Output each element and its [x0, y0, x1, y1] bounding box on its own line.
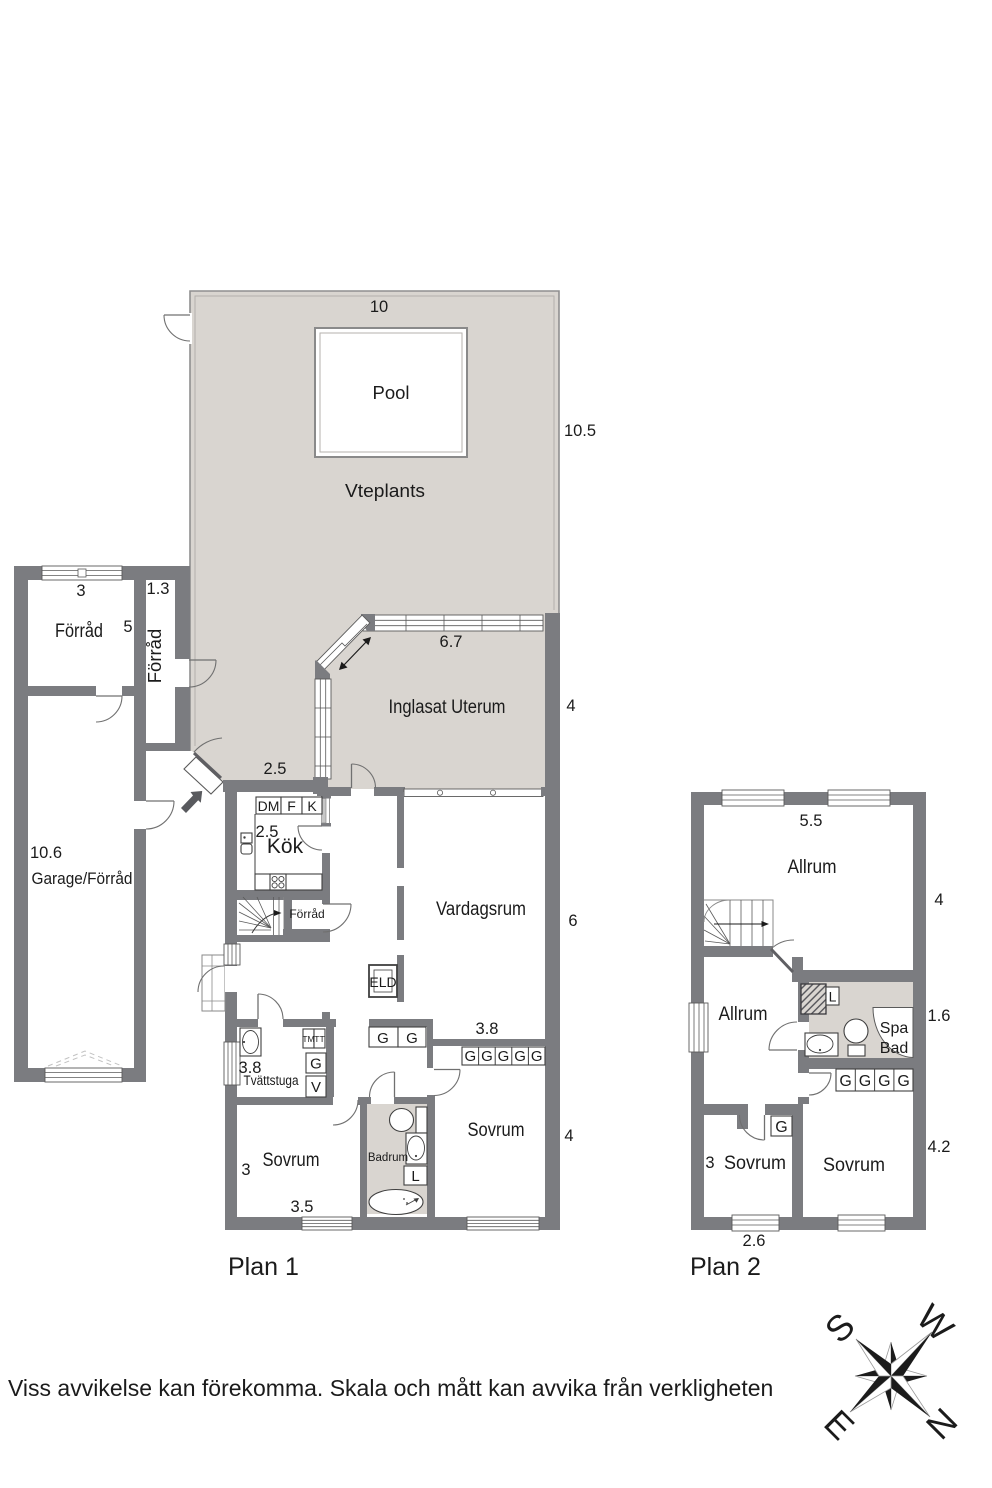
svg-text:3.5: 3.5 [291, 1198, 314, 1216]
svg-text:Sovrum: Sovrum [468, 1120, 525, 1141]
svg-text:Bad: Bad [880, 1040, 908, 1057]
svg-text:2.5: 2.5 [264, 760, 287, 778]
svg-text:Förråd: Förråd [144, 629, 165, 684]
svg-text:G: G [464, 1048, 476, 1065]
svg-text:10.6: 10.6 [30, 844, 62, 862]
svg-text:Sovrum: Sovrum [823, 1155, 885, 1176]
svg-text:K: K [307, 798, 317, 814]
svg-text:Allrum: Allrum [719, 1004, 768, 1025]
svg-text:5: 5 [123, 618, 132, 636]
svg-text:Förråd: Förråd [55, 621, 103, 642]
svg-text:4: 4 [566, 697, 575, 715]
svg-text:W: W [909, 1296, 962, 1349]
svg-text:Spa: Spa [880, 1020, 909, 1037]
svg-text:6: 6 [568, 912, 577, 930]
svg-text:G: G [514, 1048, 526, 1065]
svg-text:V: V [311, 1079, 321, 1096]
svg-text:G: G [498, 1048, 510, 1065]
svg-text:1.3: 1.3 [147, 580, 170, 598]
svg-text:Viss avvikelse kan förekomma.: Viss avvikelse kan förekomma. Skala och … [8, 1375, 773, 1401]
svg-text:L: L [411, 1168, 419, 1185]
svg-text:G: G [775, 1119, 787, 1136]
svg-text:Vteplants: Vteplants [345, 480, 425, 501]
svg-text:G: G [839, 1073, 851, 1090]
svg-text:Sovrum: Sovrum [263, 1150, 320, 1171]
svg-text:3: 3 [241, 1161, 250, 1179]
svg-text:Inglasat Uterum: Inglasat Uterum [389, 697, 506, 718]
svg-text:Pool: Pool [372, 382, 409, 403]
svg-text:4: 4 [934, 891, 943, 909]
svg-text:6.7: 6.7 [440, 633, 463, 651]
svg-text:G: G [481, 1048, 493, 1065]
svg-text:F: F [287, 798, 296, 814]
svg-text:Sovrum: Sovrum [724, 1153, 786, 1174]
svg-text:Förråd: Förråd [289, 907, 324, 921]
svg-text:Garage/Förråd: Garage/Förråd [32, 870, 133, 888]
svg-text:10.5: 10.5 [564, 422, 596, 440]
svg-text:3.8: 3.8 [476, 1020, 499, 1038]
svg-text:Vardagsrum: Vardagsrum [436, 899, 526, 920]
svg-text:G: G [377, 1030, 389, 1047]
svg-text:2.6: 2.6 [743, 1232, 766, 1250]
svg-text:L: L [829, 989, 837, 1005]
svg-text:Plan 2: Plan 2 [690, 1253, 761, 1281]
svg-text:S: S [817, 1305, 863, 1351]
svg-text:Badrum: Badrum [368, 1152, 408, 1164]
svg-text:G: G [531, 1048, 543, 1065]
svg-text:G: G [878, 1073, 890, 1090]
svg-text:G: G [406, 1030, 418, 1047]
svg-text:Allrum: Allrum [788, 857, 837, 878]
svg-text:Tvättstuga: Tvättstuga [244, 1073, 299, 1088]
svg-text:N: N [918, 1400, 965, 1447]
svg-text:Plan 1: Plan 1 [228, 1253, 299, 1281]
svg-text:G: G [897, 1073, 909, 1090]
svg-text:TT: TT [314, 1034, 324, 1044]
svg-text:TM: TM [302, 1034, 314, 1044]
svg-text:3: 3 [76, 582, 85, 600]
svg-text:G: G [310, 1056, 322, 1073]
svg-text:Kök: Kök [267, 835, 304, 858]
svg-text:DM: DM [258, 798, 280, 814]
svg-text:4: 4 [564, 1127, 573, 1145]
svg-text:3: 3 [705, 1154, 714, 1172]
svg-text:G: G [859, 1073, 871, 1090]
svg-text:ELD: ELD [369, 974, 396, 990]
svg-text:4.2: 4.2 [928, 1138, 951, 1156]
svg-text:1.6: 1.6 [928, 1007, 951, 1025]
svg-text:5.5: 5.5 [800, 812, 823, 830]
svg-text:10: 10 [370, 298, 388, 316]
